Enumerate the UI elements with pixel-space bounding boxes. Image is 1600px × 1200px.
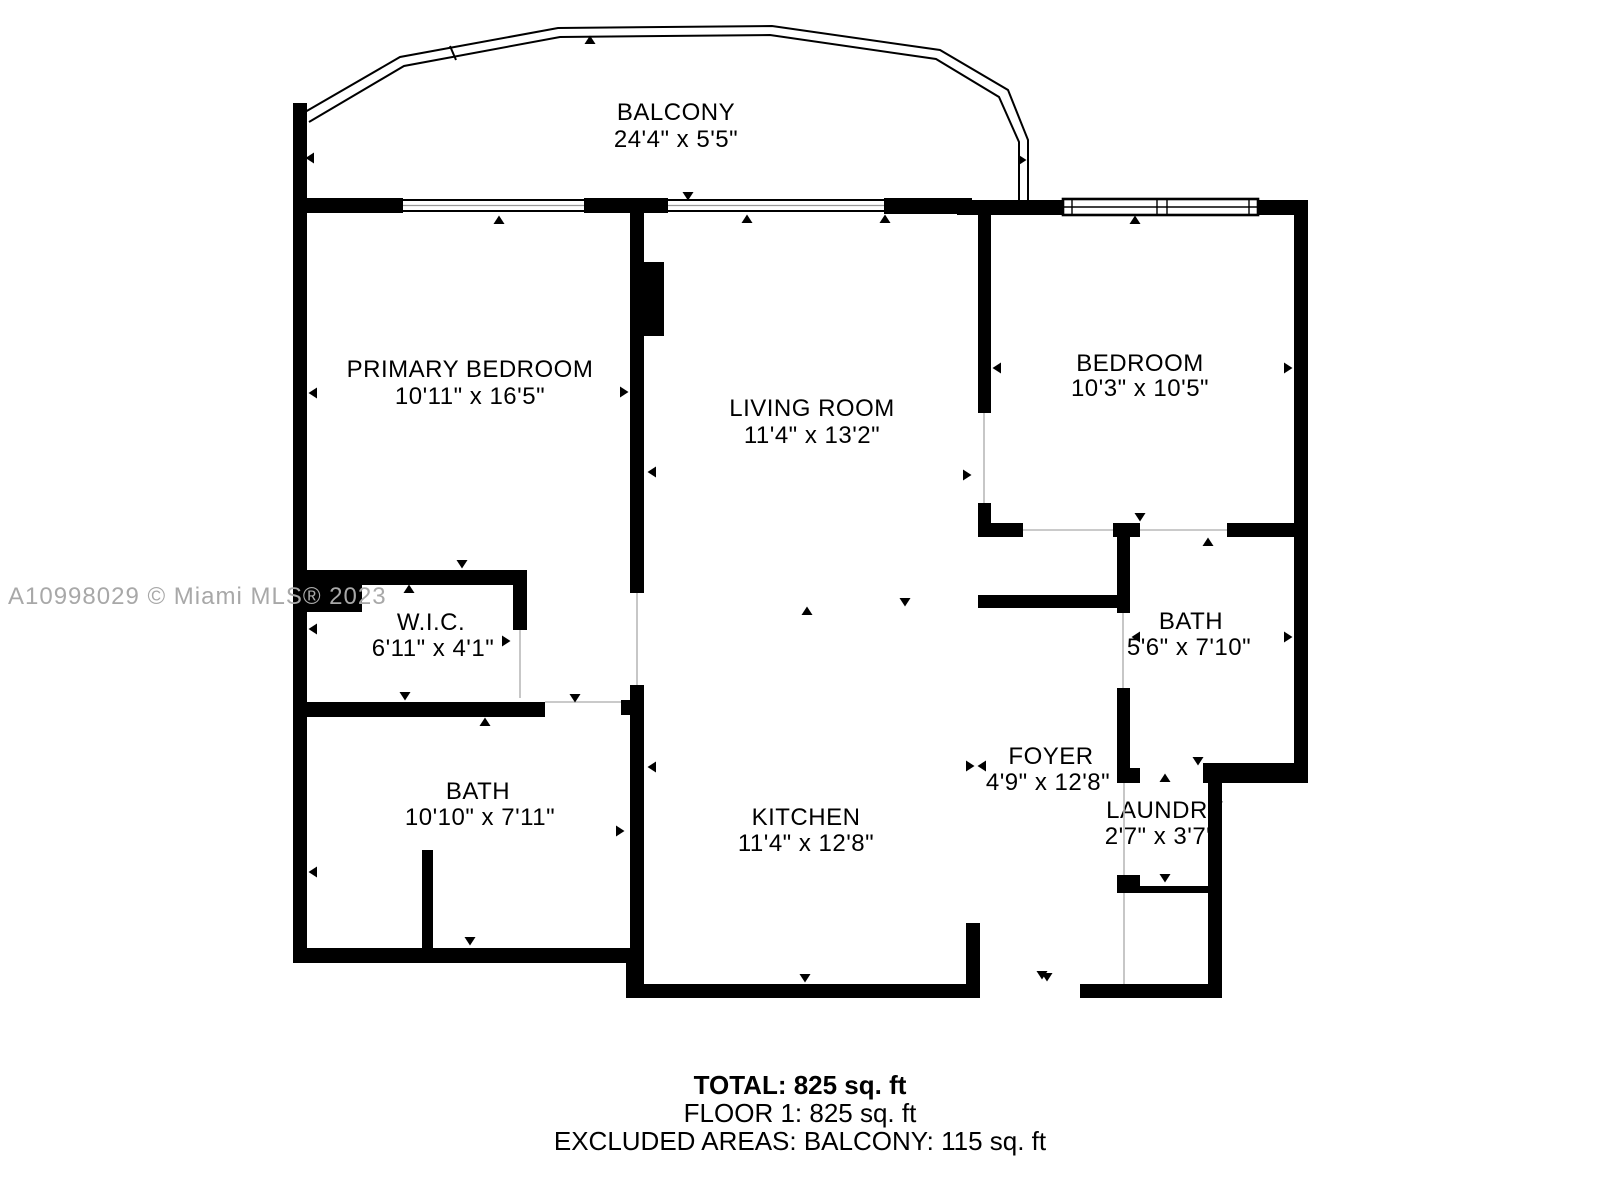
dimension-arrow	[309, 624, 318, 635]
room-dims-bedroom: 10'3" x 10'5"	[1071, 375, 1209, 402]
dimension-arrow	[465, 937, 476, 946]
dimension-arrow	[400, 692, 411, 701]
dimension-arrow	[648, 467, 657, 478]
dimension-arrow	[1193, 757, 1204, 766]
dimension-arrow	[742, 215, 753, 224]
mls-watermark: A10998029 © Miami MLS® 2023	[8, 583, 387, 610]
room-dims-laundry: 2'7" x 3'7"	[1105, 823, 1215, 850]
dimension-arrow	[1203, 538, 1214, 547]
room-label-balcony: BALCONY	[617, 99, 735, 126]
dimension-arrow	[1160, 874, 1171, 883]
dimension-arrow	[993, 363, 1002, 374]
room-label-primary-bedroom: PRIMARY BEDROOM	[347, 356, 594, 383]
dimension-arrow	[802, 607, 813, 616]
dimension-arrow	[502, 636, 511, 647]
room-label-bath-primary: BATH	[446, 778, 510, 805]
room-dims-primary-bedroom: 10'11" x 16'5"	[395, 383, 545, 410]
room-label-foyer: FOYER	[1008, 743, 1093, 770]
summary-total: TOTAL: 825 sq. ft	[694, 1070, 907, 1100]
dimension-arrow	[1135, 513, 1146, 522]
floor-plan-svg: LAUNDRY 2'7" x 3'7"	[0, 0, 1600, 1200]
floor-plan-page: LAUNDRY 2'7" x 3'7"	[0, 0, 1600, 1200]
room-dims-balcony: 24'4" x 5'5"	[614, 126, 738, 153]
room-label-kitchen: KITCHEN	[752, 804, 861, 831]
dimension-arrow	[616, 826, 625, 837]
dimension-arrow	[966, 761, 975, 772]
room-label-bath-second: BATH	[1159, 608, 1223, 635]
room-label-bedroom: BEDROOM	[1076, 350, 1204, 377]
summary-floor1: FLOOR 1: 825 sq. ft	[684, 1098, 917, 1128]
walls	[293, 103, 1308, 998]
room-dims-bath-second: 5'6" x 7'10"	[1127, 634, 1251, 661]
dimension-arrow	[494, 216, 505, 225]
room-dims-foyer: 4'9" x 12'8"	[986, 769, 1110, 796]
dimension-arrow	[1284, 363, 1293, 374]
dimension-arrow	[1018, 155, 1027, 166]
dimension-arrow	[800, 974, 811, 983]
dimension-arrow	[404, 585, 415, 594]
dimension-arrow	[880, 215, 891, 224]
room-dims-wic: 6'11" x 4'1"	[372, 635, 495, 662]
room-label-living-room: LIVING ROOM	[729, 395, 895, 422]
dimension-arrow	[620, 387, 629, 398]
dimension-arrow	[309, 388, 318, 399]
dimension-arrow	[978, 761, 987, 772]
dimension-arrow	[1160, 774, 1171, 783]
bedroom-window	[1063, 199, 1258, 215]
dimension-arrow	[900, 598, 911, 607]
dimension-arrow	[648, 762, 657, 773]
area-summary: TOTAL: 825 sq. ft FLOOR 1: 825 sq. ft EX…	[554, 1070, 1047, 1156]
dimension-arrow	[1284, 632, 1293, 643]
dimension-arrow	[457, 560, 468, 569]
room-dims-living-room: 11'4" x 13'2"	[744, 422, 880, 449]
dimension-arrow	[1130, 216, 1141, 225]
room-dims-kitchen: 11'4" x 12'8"	[738, 830, 874, 857]
dimension-arrow	[963, 470, 972, 481]
room-label-wic: W.I.C.	[397, 609, 465, 636]
summary-excluded-areas: EXCLUDED AREAS: BALCONY: 115 sq. ft	[554, 1126, 1047, 1156]
room-dims-bath-primary: 10'10" x 7'11"	[405, 804, 555, 831]
dimension-arrow	[309, 867, 318, 878]
dimension-arrow	[480, 718, 491, 727]
room-laundry-labels: LAUNDRY 2'7" x 3'7"	[1105, 797, 1224, 850]
